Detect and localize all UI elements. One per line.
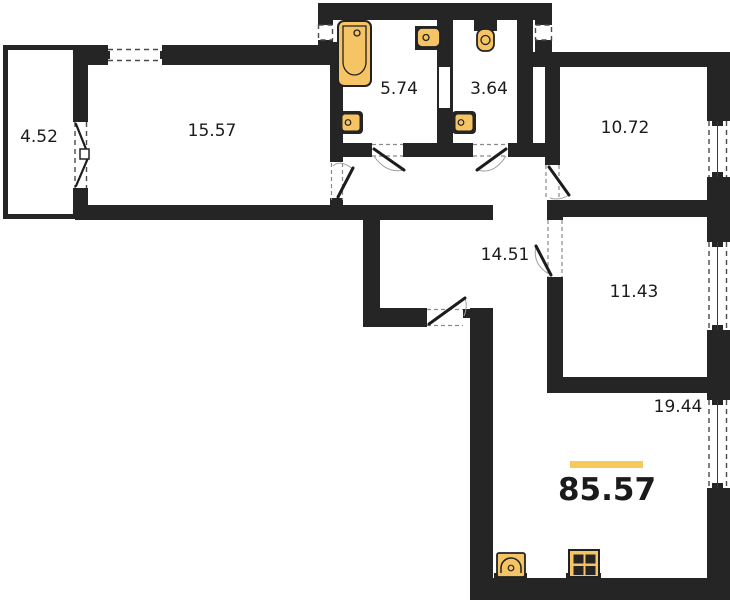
stove-icon [566, 550, 601, 582]
wall-segment [363, 205, 380, 327]
door-bedroom [546, 165, 569, 200]
total-area-label: 85.57 [558, 472, 656, 508]
washbasin-icon [452, 111, 476, 134]
window-end-tick [104, 51, 110, 59]
vent-window [319, 25, 333, 40]
wall-segment [535, 40, 552, 52]
window [709, 242, 727, 330]
wall-segment [318, 3, 552, 20]
kitchen-sink-icon [494, 553, 527, 582]
toilet-icon [474, 17, 497, 51]
bathtub-icon [338, 21, 371, 86]
wall-segment [162, 45, 343, 65]
door-bathroom [372, 145, 404, 171]
wall-segment [707, 330, 730, 400]
wall-segment [545, 52, 560, 165]
window [709, 121, 727, 177]
floorplan-page: 4.52 15.57 5.74 3.64 10.72 14.51 11.43 1… [0, 0, 730, 600]
window [108, 50, 162, 61]
door-handle [80, 149, 89, 159]
doors [75, 122, 569, 326]
room-area-label: 19.44 [654, 397, 703, 417]
window [709, 400, 727, 488]
wall-segment [517, 20, 533, 157]
wall-segment [707, 52, 730, 121]
wall-segment [470, 308, 493, 580]
room-area-label: 15.57 [188, 121, 237, 141]
wall-segment [707, 177, 730, 242]
total-area-underline [570, 461, 643, 468]
floorplan-drawing: 4.52 15.57 5.74 3.64 10.72 14.51 11.43 1… [0, 0, 730, 600]
room-area-label: 4.52 [20, 127, 58, 147]
door-living-room [332, 163, 354, 200]
door-hinge-post [463, 309, 471, 318]
balcony-french-door [75, 122, 89, 188]
wall-segment [547, 377, 710, 393]
room-area-label: 14.51 [481, 245, 530, 265]
wall-segment [535, 20, 552, 25]
balcony-wall [3, 45, 8, 219]
vent-window [536, 25, 552, 40]
balcony-wall [3, 45, 78, 50]
room-area-label: 5.74 [380, 79, 418, 99]
wall-segment [547, 277, 563, 393]
wall-sink-icon [417, 28, 440, 47]
balcony-wall [3, 214, 78, 219]
door-toilet [473, 145, 508, 172]
wall-segment [75, 205, 493, 220]
room-area-label: 3.64 [470, 79, 508, 99]
room-area-label: 11.43 [610, 282, 659, 302]
door-bedroom-2 [535, 220, 562, 277]
wall-segment [73, 48, 88, 122]
entrance-door [427, 298, 466, 326]
duct-shaft [439, 67, 450, 108]
wall-segment [560, 200, 710, 217]
washbasin-icon [339, 111, 363, 134]
room-area-label: 10.72 [601, 118, 650, 138]
wall-segment [403, 143, 473, 157]
wall-segment [318, 20, 333, 25]
window-end-tick [160, 51, 166, 59]
wall-segment [330, 143, 372, 157]
